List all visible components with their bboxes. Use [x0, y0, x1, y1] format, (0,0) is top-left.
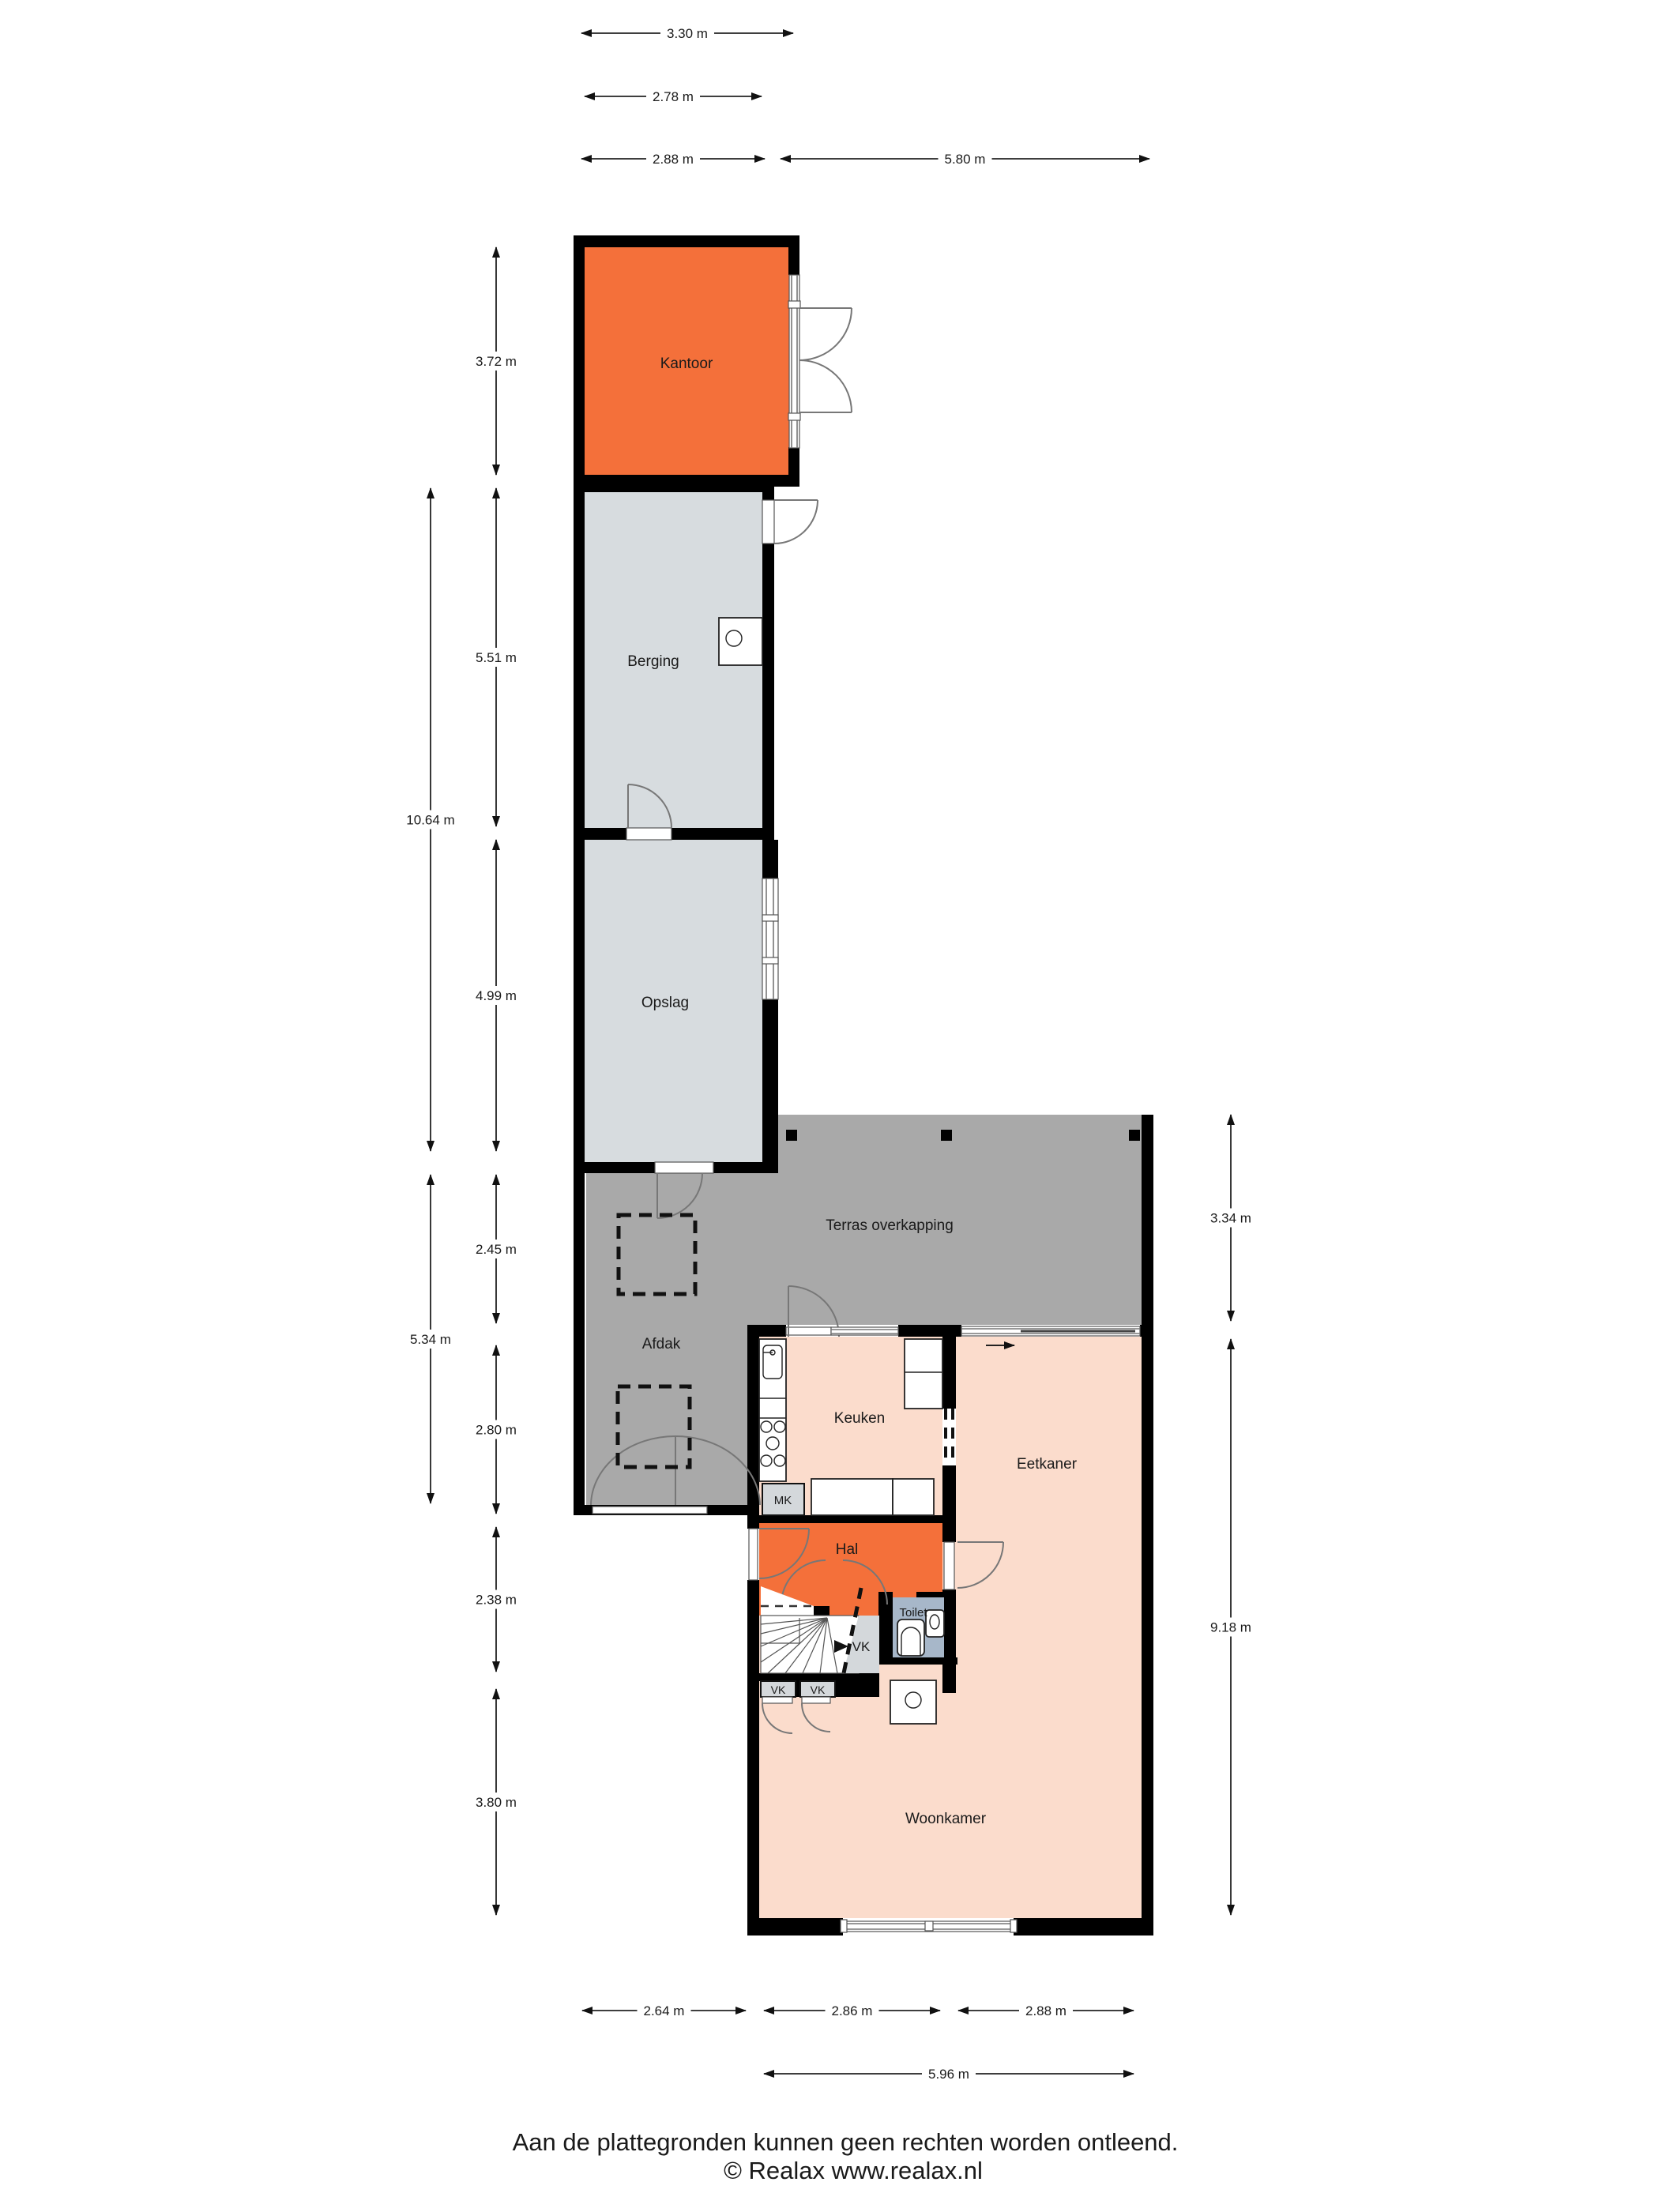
wall-house-right — [1142, 1115, 1153, 1935]
wall-house-bottom-b — [1014, 1918, 1153, 1935]
room-label-woonkamer: Woonkamer — [905, 1811, 987, 1827]
terras-post-3 — [1129, 1130, 1140, 1141]
toilet-sink — [926, 1610, 944, 1637]
opslag-afdak-door — [655, 1162, 713, 1173]
window-tick — [1010, 1920, 1017, 1932]
wall-toilet-bottom — [878, 1657, 957, 1665]
wall-toilet-left — [878, 1592, 893, 1665]
kitchen-counter-lower — [811, 1479, 893, 1515]
terras-post-2 — [941, 1130, 952, 1141]
wall-divider-b — [942, 1465, 956, 1542]
floorplan-page: 3.30 m2.78 m2.88 m5.80 m2.64 m2.86 m2.88… — [0, 0, 1659, 2212]
wall-house-bottom-a — [747, 1918, 843, 1935]
terras-post-1 — [786, 1130, 797, 1141]
wall-house-left-b — [747, 1580, 759, 1935]
wall-opslag-right-a — [762, 840, 778, 878]
dimension-label: 10.64 m — [406, 813, 454, 828]
wall-toilet-top — [916, 1592, 944, 1597]
afdak-upper-floor — [586, 1173, 778, 1325]
dimension-label: 2.86 m — [832, 2003, 873, 2018]
stair-top-gap — [761, 1606, 814, 1616]
front-door — [749, 1529, 758, 1580]
opslag-window — [762, 878, 778, 999]
dimension-label: 3.80 m — [476, 1795, 517, 1810]
floorplan-drawing: 3.30 m2.78 m2.88 m5.80 m2.64 m2.86 m2.88… — [0, 0, 1659, 2212]
berging-opslag-door — [626, 828, 671, 840]
dimension-label: 3.34 m — [1210, 1211, 1251, 1226]
dimension-label: 2.80 m — [476, 1423, 517, 1438]
dimension-label: 2.88 m — [653, 152, 694, 167]
vk-door-2 — [802, 1697, 830, 1703]
wall-opslag-bottom-a — [574, 1162, 655, 1173]
dimension-label: 9.18 m — [1210, 1620, 1251, 1635]
room-label-keuken: Keuken — [834, 1410, 885, 1427]
dimension-label: 5.96 m — [928, 2067, 969, 2082]
window-tick — [788, 301, 800, 308]
wall-hal-stub — [814, 1606, 829, 1616]
wall-berging-top — [574, 475, 774, 492]
room-label-eetkaner: Eetkaner — [1017, 1456, 1078, 1473]
room-label-vk-stair: VK — [852, 1639, 871, 1654]
dimension-label: 5.80 m — [945, 152, 986, 167]
dimension-label: 3.72 m — [476, 354, 517, 369]
keuken-terras-door — [786, 1327, 831, 1335]
wall-keuken-hal — [759, 1515, 942, 1523]
wall-kantoor-top — [574, 235, 799, 247]
room-label-berging: Berging — [627, 653, 679, 670]
room-label-terras-overkapping: Terras overkapping — [826, 1217, 954, 1234]
room-label-toilet: Toilet — [899, 1606, 927, 1619]
wall-vk-right-block — [835, 1677, 879, 1697]
dimension-label: 2.88 m — [1025, 2003, 1066, 2018]
dimension-label: 4.99 m — [476, 988, 517, 1003]
room-label-mk: MK — [774, 1494, 792, 1507]
room-label-kantoor: Kantoor — [660, 355, 713, 372]
window-tick — [762, 915, 778, 921]
room-label-afdak: Afdak — [642, 1336, 681, 1352]
room-label-vk-closet-1: VK — [771, 1683, 786, 1696]
afdak-floor — [586, 1325, 747, 1515]
dimension-label: 2.38 m — [476, 1593, 517, 1608]
footer-disclaimer: Aan de plattegronden kunnen geen rechten… — [513, 2128, 1179, 2156]
room-label-opslag: Opslag — [641, 995, 689, 1011]
room-label-hal: Hal — [836, 1541, 859, 1558]
room-label-vk-closet-2: VK — [811, 1683, 826, 1696]
window-tick — [841, 1920, 847, 1932]
kitchen-counter-lower-2 — [893, 1479, 934, 1515]
dimension-label: 2.64 m — [644, 2003, 685, 2018]
wall-berging-bottom-b — [671, 828, 774, 840]
room-fills — [0, 0, 1659, 2212]
dimension-label: 5.34 m — [410, 1332, 451, 1347]
wall-divider-c — [942, 1589, 956, 1693]
wall-divider-a — [942, 1325, 956, 1409]
window-tick — [788, 413, 800, 420]
berging-door — [762, 500, 774, 544]
vk-door-1 — [762, 1697, 792, 1703]
wall-berging-bottom-a — [574, 828, 626, 840]
dimension-label: 2.78 m — [653, 89, 694, 104]
window-tick — [925, 1921, 933, 1931]
wall-berging-right-b — [762, 544, 774, 828]
dimension-label: 2.45 m — [476, 1242, 517, 1257]
window-tick — [762, 957, 778, 964]
afdak-double-door — [592, 1507, 707, 1514]
hal-eetkamer-door — [944, 1542, 954, 1589]
wall-berging-right-a — [762, 487, 774, 500]
kitchen-cabinet — [905, 1339, 942, 1409]
dimension-label: 3.30 m — [667, 26, 708, 41]
wall-opslag-bottom-b — [713, 1162, 778, 1173]
wall-left-outbuilding — [574, 235, 585, 1515]
cv-unit — [890, 1680, 936, 1724]
wall-house-left-a — [747, 1325, 759, 1529]
dimension-label: 5.51 m — [476, 650, 517, 665]
wall-kantoor-right-upper — [788, 235, 799, 275]
wall-opslag-right-b — [762, 999, 778, 1173]
footer-copyright: © Realax www.realax.nl — [724, 2157, 983, 2184]
